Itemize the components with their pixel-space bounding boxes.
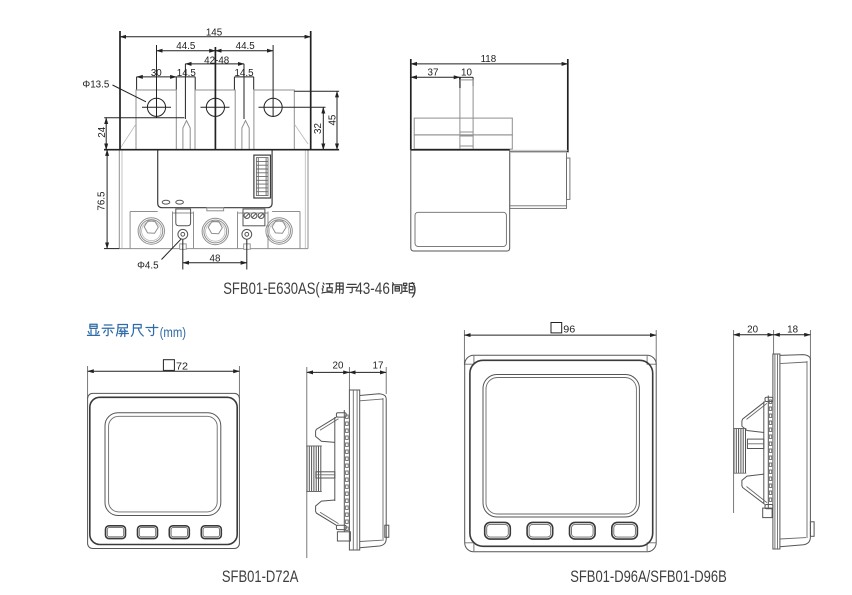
svg-text:76.5: 76.5 (96, 191, 107, 211)
svg-text:): ) (411, 280, 416, 298)
svg-text:24: 24 (97, 126, 108, 137)
svg-text:18: 18 (787, 324, 798, 335)
svg-text:SFB01-D96A/SFB01-D96B: SFB01-D96A/SFB01-D96B (570, 568, 727, 586)
svg-text:43-46: 43-46 (355, 280, 390, 298)
svg-text:20: 20 (333, 361, 344, 372)
svg-text:45: 45 (328, 114, 339, 125)
svg-text:30: 30 (151, 68, 162, 79)
svg-text:(mm): (mm) (160, 324, 187, 340)
svg-text:145: 145 (206, 28, 223, 39)
svg-text:37: 37 (428, 68, 439, 79)
svg-text:44.5: 44.5 (176, 41, 196, 52)
svg-text:SFB01-D72A: SFB01-D72A (222, 568, 299, 586)
svg-text:14.5: 14.5 (177, 68, 197, 79)
svg-text:42-48: 42-48 (204, 55, 230, 66)
svg-text:Φ13.5: Φ13.5 (82, 79, 109, 90)
svg-text:20: 20 (747, 324, 758, 335)
svg-text:44.5: 44.5 (236, 41, 256, 52)
svg-text:118: 118 (481, 54, 497, 65)
svg-text:SFB01-E630AS(: SFB01-E630AS( (223, 280, 320, 298)
svg-text:14.5: 14.5 (234, 68, 254, 79)
svg-text:17: 17 (373, 361, 384, 372)
svg-text:Φ4.5: Φ4.5 (137, 261, 159, 272)
svg-text:96: 96 (563, 324, 576, 335)
svg-text:10: 10 (461, 68, 472, 79)
svg-text:32: 32 (313, 123, 324, 134)
svg-text:48: 48 (210, 254, 221, 265)
